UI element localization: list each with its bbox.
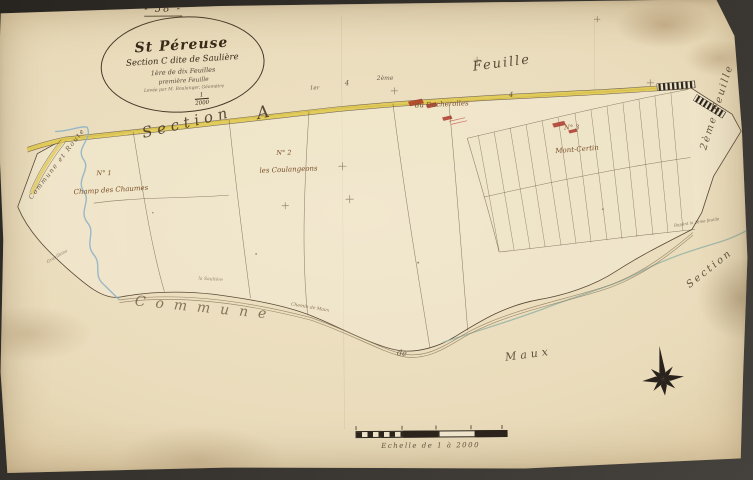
sheet-mark-3: 2ème: [377, 76, 394, 82]
neighbor-de-bottom: de: [397, 349, 408, 358]
scale-bar-tick: [501, 425, 502, 429]
scale-bar-dark-2: [476, 430, 508, 437]
sheet-mark-1: 1er: [310, 86, 319, 92]
map-paper-sheet: - 58 - St Péreuse Section C dite de Saul…: [0, 0, 750, 476]
scale-bar-tick: [401, 426, 402, 430]
scale-bar-dark-1: [404, 430, 439, 437]
section-outline: [17, 86, 743, 354]
sheet-number: - 58 -: [144, 4, 182, 16]
parcel-n1-number: N° 1: [96, 170, 111, 177]
scale-bar-tick: [470, 425, 471, 429]
scale-bar-tick: [355, 426, 356, 430]
scale-bar-checker: [356, 431, 404, 438]
scale-fraction-denominator: 2000: [195, 98, 210, 107]
scale-bar: Echelle de 1 à 2000: [355, 424, 505, 451]
parcel-n3-number: N° 3: [564, 124, 579, 131]
scale-bar-caption: Echelle de 1 à 2000: [356, 441, 506, 450]
sheet-mark-2: 4: [345, 80, 350, 87]
sheet-mark-4: 4: [509, 92, 514, 99]
scale-fraction: 1 2000: [194, 92, 209, 107]
compass-rose-icon: [639, 344, 686, 398]
parcel-n2-number: N° 2: [276, 150, 291, 157]
scanned-map-page: - 58 - St Péreuse Section C dite de Saul…: [0, 0, 753, 480]
scale-bar-tick: [435, 426, 436, 430]
scale-bar-light: [439, 430, 476, 437]
cartouche-surveyor: Levée par M. Boulanger, Géomètre: [144, 84, 224, 94]
scale-bar-segments: [356, 430, 508, 436]
